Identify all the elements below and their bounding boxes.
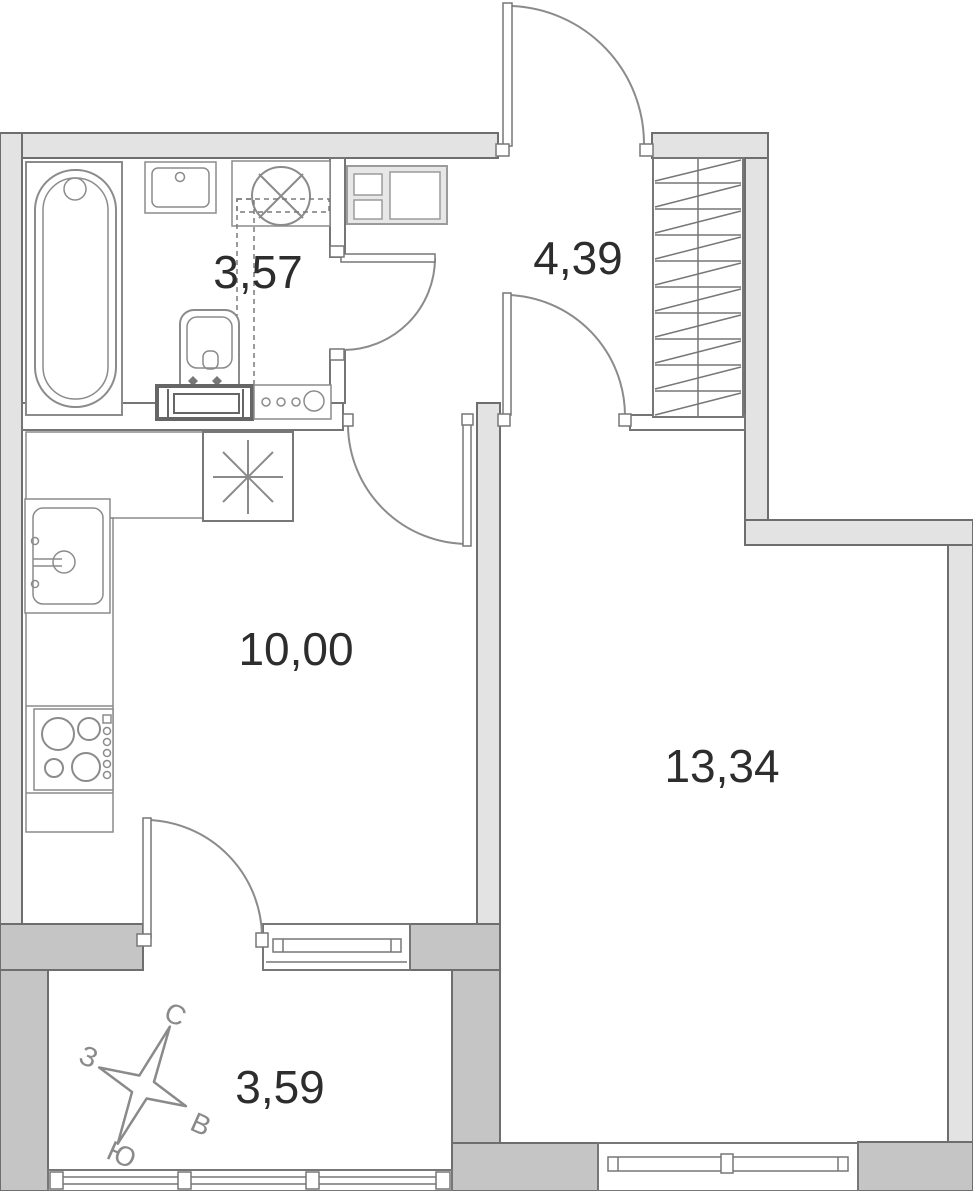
toilet-icon xyxy=(180,310,239,397)
compass-west-label: З xyxy=(75,1039,103,1074)
living-room-window xyxy=(598,1143,858,1191)
control-panel-icon xyxy=(254,385,331,419)
kitchen-sink-icon xyxy=(25,499,110,613)
balcony-door xyxy=(137,818,268,947)
kitchen-balcony-window xyxy=(263,924,410,970)
bathroom-area-label: 3,57 xyxy=(213,246,303,298)
hallway-area-label: 4,39 xyxy=(533,232,623,284)
balcony-wall-left xyxy=(0,970,48,1191)
living-room-door xyxy=(498,293,631,426)
balcony-wall-top-right xyxy=(408,924,500,970)
bathroom-sink-icon xyxy=(145,162,216,213)
wall-bottom-left xyxy=(452,1143,598,1191)
wall-step xyxy=(745,520,973,545)
living-room-area-label: 13,34 xyxy=(664,740,779,792)
floor-plan: С З В Ю 3,57 4,39 10,00 13,34 3,59 xyxy=(0,0,973,1191)
kitchen-door xyxy=(343,414,473,546)
bathroom-wall-right-upper xyxy=(330,158,345,257)
bathtub-icon xyxy=(26,162,122,415)
wall-kitchen-room-divider xyxy=(477,403,500,924)
ventilation-icon xyxy=(203,432,293,521)
kitchen-area-label: 10,00 xyxy=(238,623,353,675)
wall-top-right xyxy=(652,133,768,158)
compass-north-label: С xyxy=(160,996,191,1033)
wall-right-lower xyxy=(948,545,973,1142)
entrance-door xyxy=(496,3,653,156)
stove-icon xyxy=(34,709,113,790)
towel-radiator-icon xyxy=(157,386,252,419)
wall-right-upper xyxy=(745,158,768,520)
balcony-window xyxy=(48,1170,452,1191)
wall-bottom-right xyxy=(858,1142,973,1191)
bathroom-door xyxy=(330,246,435,360)
wall-left xyxy=(0,133,22,924)
compass-south-label: Ю xyxy=(102,1135,140,1175)
balcony-wall-right xyxy=(452,970,500,1143)
washing-machine-icon xyxy=(232,161,330,226)
compass-rose-icon: С З В Ю xyxy=(44,972,253,1191)
hallway-cabinet-icon xyxy=(347,166,447,224)
balcony-wall-top-left xyxy=(0,924,143,970)
compass-east-label: В xyxy=(186,1106,216,1142)
wardrobe-icon xyxy=(653,158,743,417)
wall-top-left xyxy=(0,133,498,158)
balcony-area-label: 3,59 xyxy=(235,1061,325,1113)
